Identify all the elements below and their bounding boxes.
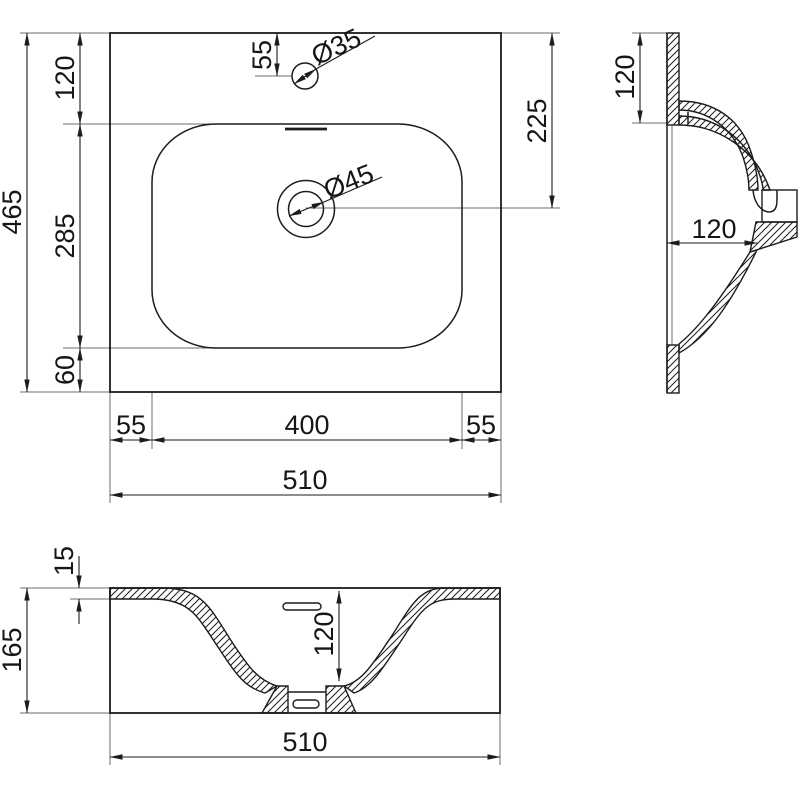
side-front-rim-section <box>667 345 679 393</box>
front-section-view: 15 165 120 510 <box>0 546 500 765</box>
plan-dim-left-margin: 55 <box>116 410 146 440</box>
plan-view: 465 120 285 60 55 Ø35 225 Ø45 55 400 55 … <box>0 22 560 503</box>
plan-dim-overall-width: 510 <box>282 465 327 495</box>
side-section-view: 120 120 <box>610 33 797 393</box>
front-left-bowl-section <box>110 588 277 693</box>
front-dim-overall-width: 510 <box>282 727 327 757</box>
plan-dim-right-margin: 55 <box>466 410 496 440</box>
front-dim-rim-thickness: 15 <box>49 546 79 576</box>
plan-dim-drain-diameter: Ø45 <box>319 158 378 205</box>
technical-drawing-page: 465 120 285 60 55 Ø35 225 Ø45 55 400 55 … <box>0 0 800 800</box>
plan-dim-back-rim: 120 <box>50 55 80 100</box>
front-right-bowl-section <box>344 588 500 693</box>
plan-dim-basin-width: 400 <box>284 410 329 440</box>
plan-dim-overall-height: 465 <box>0 189 27 234</box>
plan-countertop-outline <box>110 33 501 392</box>
front-overflow-slot <box>283 603 321 610</box>
plan-dim-faucet-offset: 55 <box>247 40 277 70</box>
front-dim-overall-height: 165 <box>0 627 27 672</box>
front-dimension-lines <box>27 556 500 757</box>
side-drain-base-section <box>750 222 797 252</box>
plan-dim-front-rim: 60 <box>50 355 80 385</box>
front-drain-slot <box>293 700 319 708</box>
side-drain-cavity <box>762 190 797 222</box>
side-bowl-wall-section <box>679 101 758 190</box>
side-dim-bowl-depth: 120 <box>691 214 736 244</box>
side-dim-back-rim-width: 120 <box>610 54 640 99</box>
side-back-rim-section <box>667 33 679 125</box>
front-dim-bowl-depth: 120 <box>309 611 339 656</box>
washbasin-drawing-svg: 465 120 285 60 55 Ø35 225 Ø45 55 400 55 … <box>0 0 800 800</box>
plan-dim-faucet-diameter: Ø35 <box>307 22 366 71</box>
plan-dim-drain-offset: 225 <box>522 98 552 143</box>
plan-basin-outline <box>152 124 462 348</box>
plan-dim-basin-length: 285 <box>50 213 80 258</box>
side-bowl-underside-section <box>679 250 757 353</box>
